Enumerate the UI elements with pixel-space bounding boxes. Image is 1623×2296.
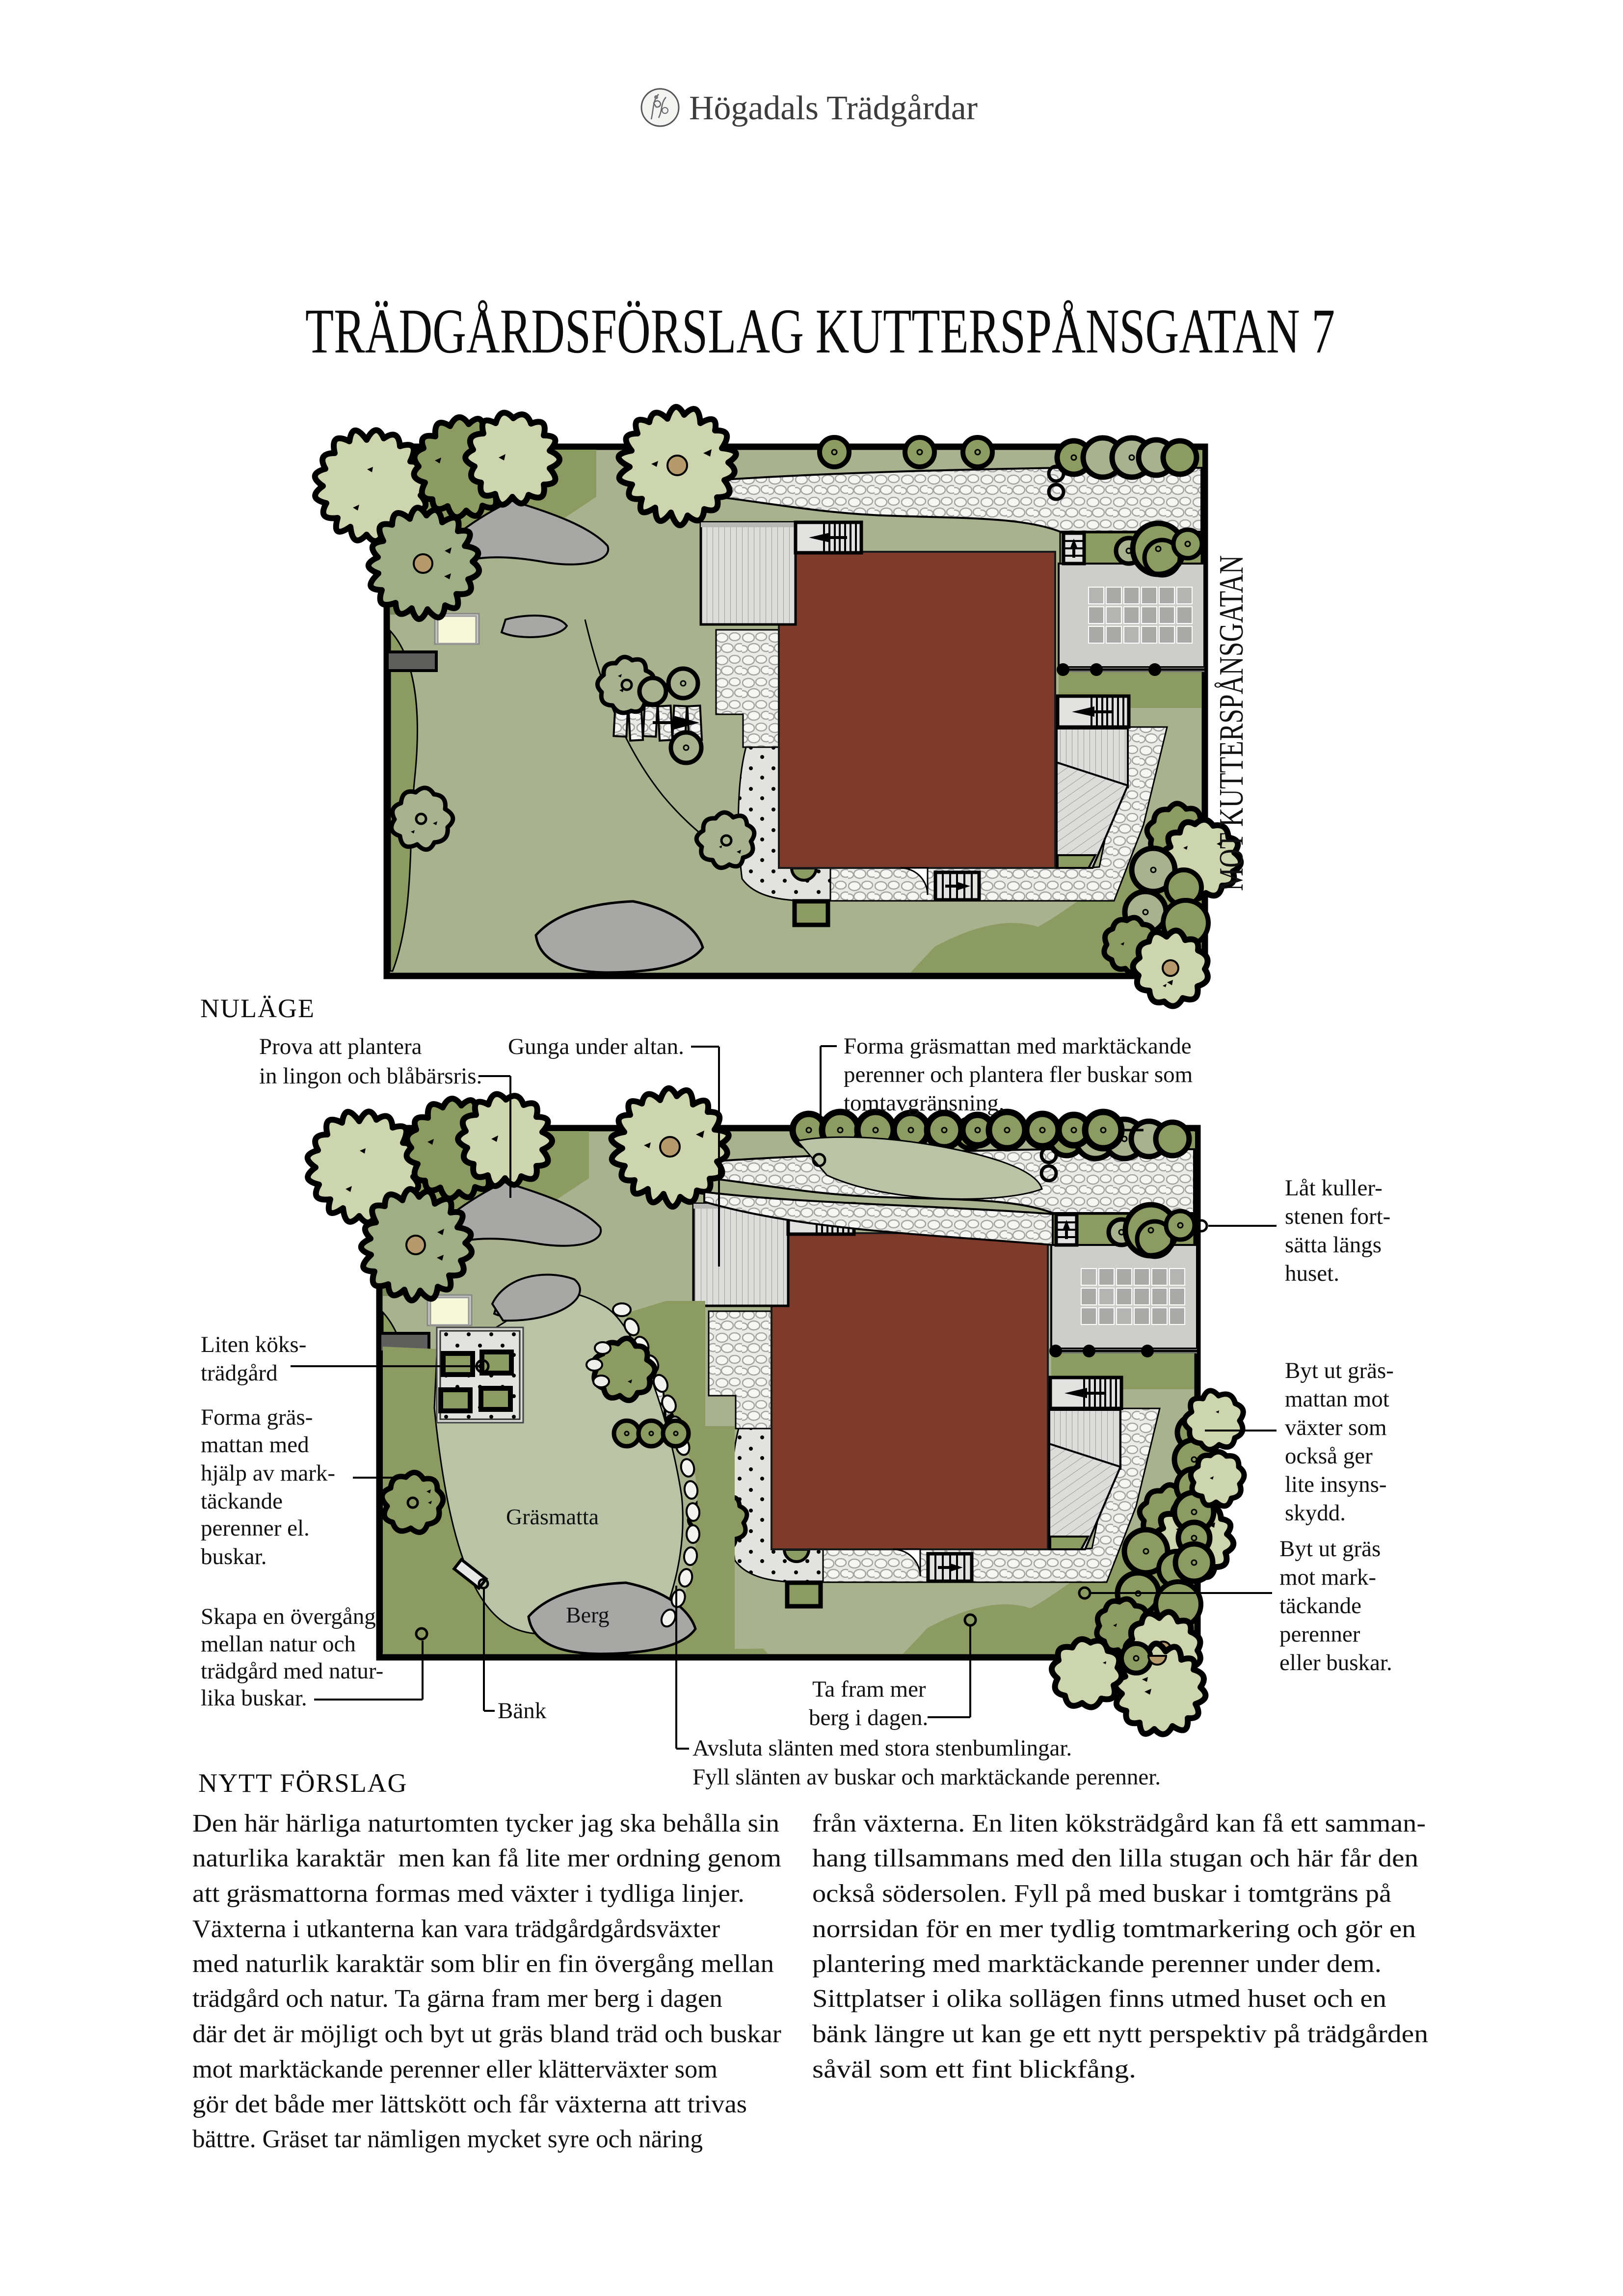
svg-text:Forma gräsmattan med marktäcka: Forma gräsmattan med marktäckande	[844, 1033, 1192, 1059]
svg-text:att gräsmattorna formas med vä: att gräsmattorna formas med växter i tyd…	[192, 1880, 745, 1908]
svg-text:perenner el.: perenner el.	[201, 1515, 310, 1541]
svg-text:mot mark-: mot mark-	[1279, 1565, 1376, 1590]
svg-text:perenner och plantera fler bus: perenner och plantera fler buskar som	[844, 1062, 1193, 1087]
svg-text:NYTT FÖRSLAG: NYTT FÖRSLAG	[198, 1768, 408, 1798]
svg-text:lika buskar.: lika buskar.	[201, 1685, 307, 1711]
svg-text:mattan med: mattan med	[201, 1432, 309, 1458]
svg-text:huset.: huset.	[1285, 1261, 1339, 1286]
svg-text:Prova att plantera: Prova att plantera	[259, 1034, 422, 1059]
svg-text:eller buskar.: eller buskar.	[1279, 1650, 1392, 1675]
svg-text:perenner: perenner	[1279, 1621, 1360, 1647]
svg-text:Gräsmatta: Gräsmatta	[506, 1504, 599, 1529]
svg-text:berg i dagen.: berg i dagen.	[809, 1705, 928, 1730]
svg-text:Byt ut gräs: Byt ut gräs	[1279, 1536, 1381, 1562]
svg-text:gör det både mer lättskött och: gör det både mer lättskött och får växte…	[192, 2090, 747, 2118]
svg-text:buskar.: buskar.	[201, 1544, 266, 1569]
svg-text:Bänk: Bänk	[498, 1698, 547, 1724]
svg-text:Den här härliga naturtomten ty: Den här härliga naturtomten tycker jag s…	[192, 1810, 779, 1837]
svg-text:Liten köks-: Liten köks-	[201, 1332, 306, 1357]
svg-text:Berg: Berg	[566, 1602, 610, 1627]
svg-text:såväl som ett fint blickfång.: såväl som ett fint blickfång.	[812, 2055, 1136, 2083]
svg-text:plantering med marktäckande pe: plantering med marktäckande perenner und…	[812, 1950, 1382, 1978]
svg-text:sätta längs: sätta längs	[1285, 1232, 1382, 1258]
svg-text:Skapa en övergång: Skapa en övergång	[201, 1604, 376, 1629]
svg-text:Gunga under altan.: Gunga under altan.	[508, 1034, 684, 1059]
svg-text:naturlika karaktär men kan få: naturlika karaktär men kan få lite mer o…	[192, 1844, 781, 1872]
svg-text:lite insyns-: lite insyns-	[1285, 1472, 1387, 1497]
svg-text:Högadals Trädgårdar: Högadals Trädgårdar	[689, 89, 978, 127]
svg-text:med naturlik karaktär som blir: med naturlik karaktär som blir en fin öv…	[192, 1950, 774, 1978]
svg-text:skydd.: skydd.	[1285, 1500, 1346, 1526]
svg-text:Växterna i utkanterna kan vara: Växterna i utkanterna kan vara trädgårdg…	[192, 1915, 720, 1943]
svg-text:tomtavgränsning.: tomtavgränsning.	[844, 1090, 1005, 1116]
svg-text:från växterna. En liten kökstr: från växterna. En liten köksträdgård kan…	[812, 1810, 1426, 1837]
svg-text:TRÄDGÅRDSFÖRSLAG KUTTERSPÅNSGA: TRÄDGÅRDSFÖRSLAG KUTTERSPÅNSGATAN 7	[305, 296, 1335, 367]
svg-text:trädgård: trädgård	[201, 1360, 278, 1386]
svg-text:NULÄGE: NULÄGE	[200, 994, 315, 1023]
svg-text:trädgård med natur-: trädgård med natur-	[201, 1658, 383, 1684]
svg-text:mot marktäckande perenner elle: mot marktäckande perenner eller klätterv…	[192, 2055, 718, 2083]
svg-text:MOT KUTTERSPÅNSGATAN: MOT KUTTERSPÅNSGATAN	[1213, 555, 1251, 891]
svg-text:in lingon och blåbärsris.: in lingon och blåbärsris.	[259, 1063, 482, 1089]
svg-text:också södersolen. Fyll på med: också södersolen. Fyll på med buskar i t…	[812, 1880, 1391, 1908]
svg-text:hang tillsammans med den lilla: hang tillsammans med den lilla stugan oc…	[812, 1844, 1418, 1872]
svg-text:Avsluta slänten med stora sten: Avsluta slänten med stora stenbumlingar.	[692, 1735, 1072, 1761]
svg-text:täckande: täckande	[201, 1488, 283, 1514]
svg-text:mellan natur och: mellan natur och	[201, 1631, 356, 1657]
svg-text:trädgård och natur. Ta gärna f: trädgård och natur. Ta gärna fram mer be…	[192, 1985, 722, 2013]
svg-text:bänk längre ut kan ge ett nytt: bänk längre ut kan ge ett nytt perspekti…	[812, 2020, 1428, 2048]
svg-text:Låt kuller-: Låt kuller-	[1285, 1175, 1383, 1201]
svg-text:Sittplatser i olika sollägen f: Sittplatser i olika sollägen finns utmed…	[812, 1985, 1386, 2013]
svg-text:Forma gräs-: Forma gräs-	[201, 1405, 313, 1430]
svg-text:också ger: också ger	[1285, 1443, 1373, 1469]
svg-text:norrsidan för en mer tydlig to: norrsidan för en mer tydlig tomtmarkerin…	[812, 1915, 1416, 1943]
svg-text:täckande: täckande	[1279, 1593, 1361, 1619]
svg-text:Byt ut gräs-: Byt ut gräs-	[1285, 1358, 1394, 1383]
svg-text:mattan mot: mattan mot	[1285, 1386, 1389, 1412]
svg-text:hjälp av mark-: hjälp av mark-	[201, 1460, 335, 1486]
svg-text:Fyll slänten av buskar och mar: Fyll slänten av buskar och marktäckande …	[692, 1764, 1161, 1790]
svg-text:stenen fort-: stenen fort-	[1285, 1204, 1390, 1229]
svg-text:växter som: växter som	[1285, 1415, 1387, 1440]
svg-text:där det är möjligt och byt ut: där det är möjligt och byt ut gräs bland…	[192, 2020, 781, 2048]
svg-text:Ta fram mer: Ta fram mer	[812, 1676, 926, 1702]
svg-text:bättre. Gräset tar nämligen my: bättre. Gräset tar nämligen mycket syre …	[192, 2125, 703, 2153]
